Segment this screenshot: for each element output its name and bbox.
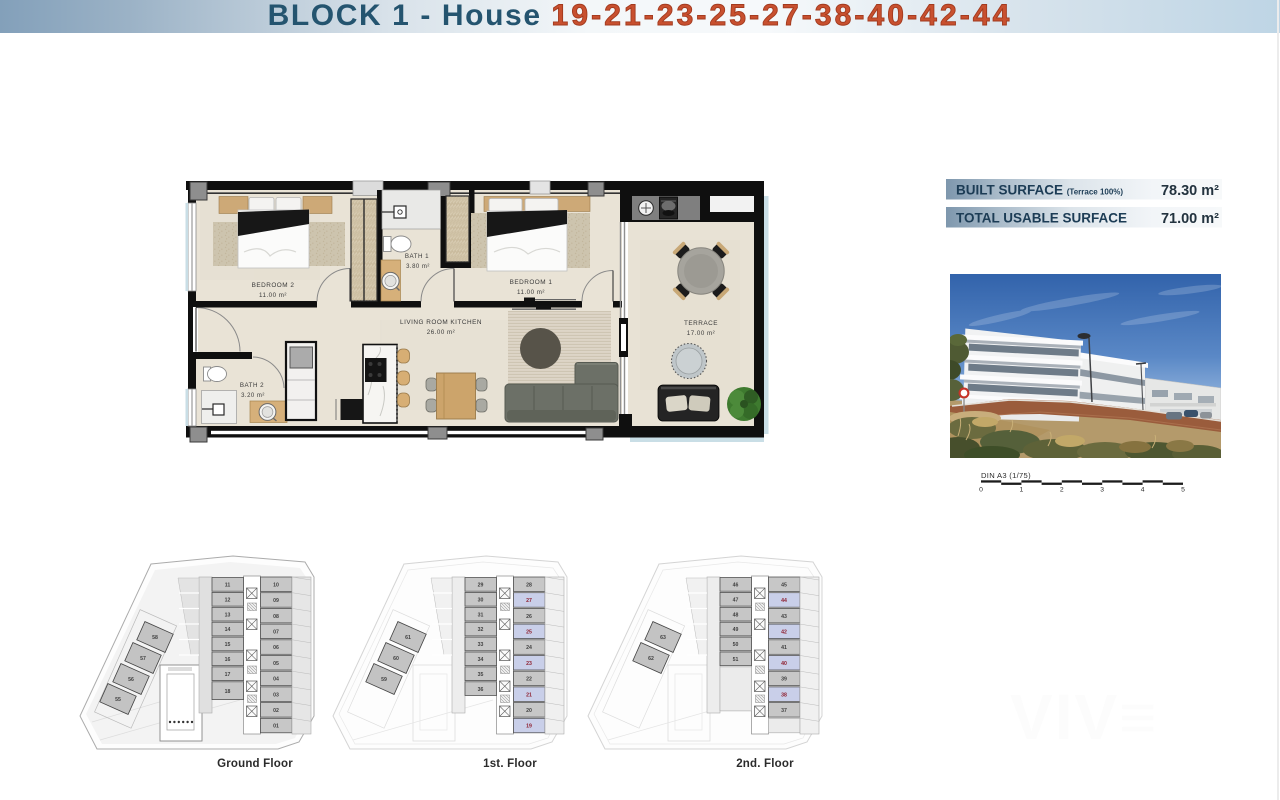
svg-text:56: 56 (128, 677, 134, 683)
svg-text:2: 2 (1060, 487, 1064, 494)
svg-text:62: 62 (648, 656, 654, 662)
svg-text:39: 39 (781, 677, 787, 683)
svg-text:19: 19 (526, 724, 532, 730)
svg-text:71.00 m²: 71.00 m² (1161, 211, 1219, 227)
svg-text:38: 38 (781, 692, 787, 698)
svg-text:26: 26 (526, 614, 532, 620)
svg-text:17: 17 (225, 672, 231, 678)
svg-text:4: 4 (1141, 487, 1145, 494)
svg-text:46: 46 (733, 583, 739, 589)
svg-text:57: 57 (140, 656, 146, 662)
svg-text:LIVING ROOM KITCHEN: LIVING ROOM KITCHEN (400, 319, 482, 326)
svg-text:21: 21 (526, 692, 532, 698)
svg-text:15: 15 (225, 642, 231, 648)
svg-text:16: 16 (225, 657, 231, 663)
svg-text:2nd. Floor: 2nd. Floor (736, 758, 794, 770)
svg-text:55: 55 (115, 697, 121, 703)
svg-text:11.00 m²: 11.00 m² (517, 289, 545, 296)
svg-text:48: 48 (733, 612, 739, 618)
svg-text:07: 07 (273, 630, 279, 636)
svg-text:34: 34 (478, 657, 484, 663)
svg-text:36: 36 (478, 687, 484, 693)
svg-text:26.00 m²: 26.00 m² (427, 329, 455, 336)
svg-text:DIN A3 (1/75): DIN A3 (1/75) (981, 471, 1031, 480)
svg-text:04: 04 (273, 677, 279, 683)
svg-text:33: 33 (478, 642, 484, 648)
svg-text:1: 1 (1020, 487, 1024, 494)
svg-text:BEDROOM 1: BEDROOM 1 (510, 279, 553, 286)
svg-text:37: 37 (781, 708, 787, 714)
svg-text:14: 14 (225, 627, 231, 633)
svg-text:29: 29 (478, 583, 484, 589)
svg-text:09: 09 (273, 598, 279, 604)
svg-text:58: 58 (152, 635, 158, 641)
svg-text:5: 5 (1181, 487, 1185, 494)
svg-text:28: 28 (526, 582, 532, 588)
svg-text:59: 59 (381, 677, 387, 683)
svg-text:06: 06 (273, 645, 279, 651)
svg-text:32: 32 (478, 627, 484, 633)
svg-text:TOTAL USABLE SURFACE: TOTAL USABLE SURFACE (956, 211, 1127, 226)
svg-text:63: 63 (660, 635, 666, 641)
svg-text:50: 50 (733, 642, 739, 648)
svg-text:TERRACE: TERRACE (684, 320, 718, 327)
svg-text:BATH 2: BATH 2 (240, 382, 264, 389)
svg-text:1st. Floor: 1st. Floor (483, 758, 537, 770)
svg-text:BATH 1: BATH 1 (405, 253, 429, 260)
svg-text:18: 18 (225, 689, 231, 695)
svg-text:49: 49 (733, 627, 739, 633)
svg-text:02: 02 (273, 708, 279, 714)
svg-text:45: 45 (781, 582, 787, 588)
svg-text:0: 0 (979, 487, 983, 494)
svg-text:78.30 m²: 78.30 m² (1161, 183, 1219, 199)
svg-text:11: 11 (225, 583, 231, 589)
svg-text:47: 47 (733, 598, 739, 604)
svg-text:17.00 m²: 17.00 m² (687, 330, 715, 337)
svg-text:61: 61 (405, 635, 411, 641)
svg-text:08: 08 (273, 614, 279, 620)
svg-text:44: 44 (781, 598, 787, 604)
svg-text:30: 30 (478, 598, 484, 604)
svg-text:51: 51 (733, 657, 739, 663)
svg-text:10: 10 (273, 582, 279, 588)
svg-text:24: 24 (526, 645, 532, 651)
svg-text:12: 12 (225, 598, 231, 604)
svg-text:03: 03 (273, 692, 279, 698)
svg-text:40: 40 (781, 661, 787, 667)
svg-text:20: 20 (526, 708, 532, 714)
svg-text:60: 60 (393, 656, 399, 662)
svg-text:11.00 m²: 11.00 m² (259, 292, 287, 299)
svg-text:Ground Floor: Ground Floor (217, 758, 293, 770)
svg-text:01: 01 (273, 724, 279, 730)
svg-text:27: 27 (526, 598, 532, 604)
svg-text:35: 35 (478, 672, 484, 678)
svg-text:23: 23 (526, 661, 532, 667)
svg-text:05: 05 (273, 661, 279, 667)
svg-text:3.80 m²: 3.80 m² (406, 264, 430, 270)
svg-text:25: 25 (526, 630, 532, 636)
svg-text:31: 31 (478, 612, 484, 618)
svg-text:3.20 m²: 3.20 m² (241, 393, 265, 399)
svg-text:42: 42 (781, 630, 787, 636)
svg-text:41: 41 (781, 645, 787, 651)
svg-text:22: 22 (526, 677, 532, 683)
svg-text:13: 13 (225, 612, 231, 618)
svg-text:BEDROOM 2: BEDROOM 2 (252, 282, 295, 289)
svg-text:3: 3 (1100, 487, 1104, 494)
svg-text:43: 43 (781, 614, 787, 620)
